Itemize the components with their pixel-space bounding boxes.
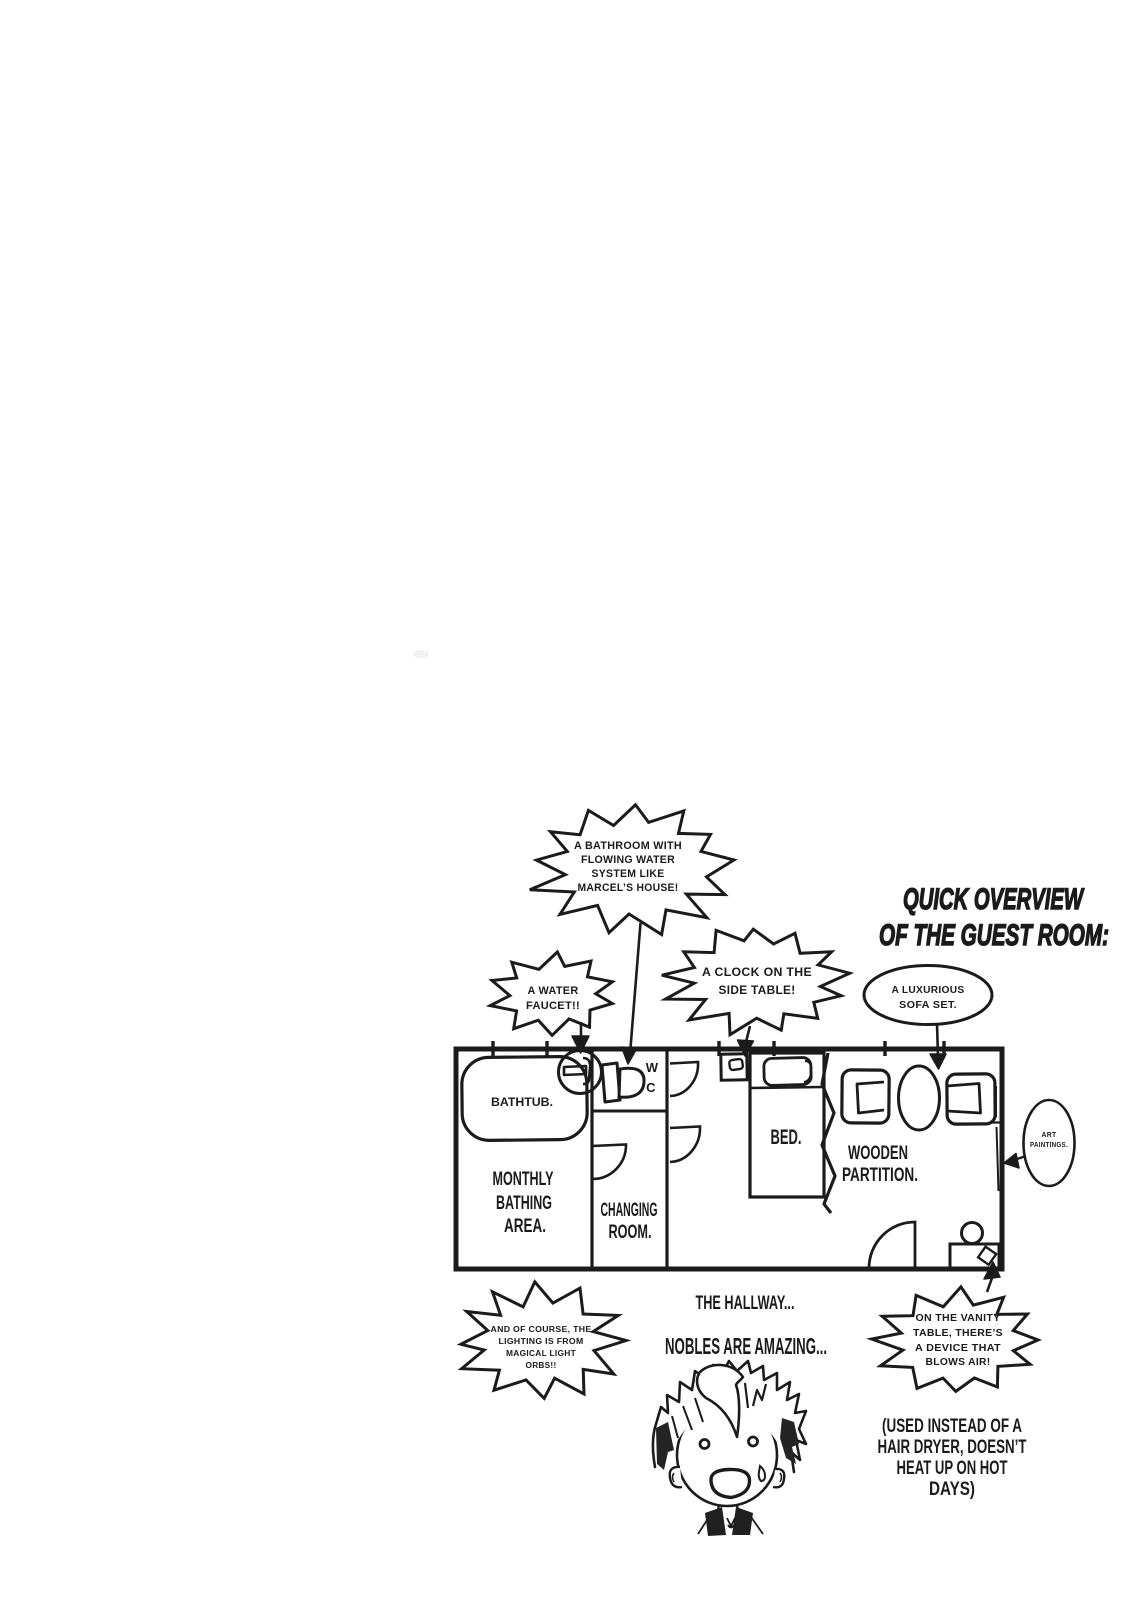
svg-text:HEAT UP ON HOT: HEAT UP ON HOT	[897, 1457, 1008, 1479]
svg-text:WOODEN: WOODEN	[848, 1142, 908, 1164]
svg-text:BATHING: BATHING	[496, 1192, 552, 1214]
svg-text:C: C	[646, 1080, 656, 1095]
svg-text:OF THE GUEST ROOM:: OF THE GUEST ROOM:	[879, 919, 1109, 952]
svg-text:FAUCET!!: FAUCET!!	[526, 1000, 580, 1012]
svg-text:ROOM.: ROOM.	[609, 1221, 652, 1243]
svg-text:NOBLES ARE AMAZING...: NOBLES ARE AMAZING...	[665, 1333, 827, 1359]
svg-text:A DEVICE THAT: A DEVICE THAT	[915, 1343, 1001, 1354]
svg-text:A LUXURIOUS: A LUXURIOUS	[892, 985, 965, 996]
svg-text:ART: ART	[1042, 1132, 1057, 1139]
svg-text:MAGICAL LIGHT: MAGICAL LIGHT	[506, 1348, 576, 1358]
svg-text:BLOWS AIR!: BLOWS AIR!	[926, 1357, 991, 1368]
svg-text:ON THE VANITY: ON THE VANITY	[916, 1313, 1001, 1324]
svg-text:DAYS): DAYS)	[929, 1478, 975, 1500]
svg-text:TABLE, THERE’S: TABLE, THERE’S	[913, 1328, 1003, 1339]
svg-text:A WATER: A WATER	[528, 985, 579, 997]
svg-text:ORBS!!: ORBS!!	[526, 1360, 557, 1370]
svg-text:A BATHROOM WITH: A BATHROOM WITH	[574, 840, 682, 852]
svg-text:FLOWING WATER: FLOWING WATER	[581, 854, 675, 866]
svg-text:(USED INSTEAD OF A: (USED INSTEAD OF A	[882, 1415, 1022, 1437]
svg-text:A CLOCK ON THE: A CLOCK ON THE	[702, 967, 812, 979]
svg-text:SYSTEM LIKE: SYSTEM LIKE	[592, 868, 665, 880]
svg-text:AREA.: AREA.	[504, 1215, 546, 1237]
svg-text:LIGHTING IS FROM: LIGHTING IS FROM	[499, 1336, 584, 1346]
svg-text:CHANGING: CHANGING	[601, 1199, 658, 1221]
svg-text:PAINTINGS.: PAINTINGS.	[1030, 1142, 1068, 1149]
svg-text:THE HALLWAY...: THE HALLWAY...	[696, 1292, 795, 1314]
svg-text:W: W	[646, 1060, 659, 1075]
svg-text:HAIR DRYER, DOESN’T: HAIR DRYER, DOESN’T	[878, 1436, 1027, 1458]
svg-text:SIDE TABLE!: SIDE TABLE!	[719, 985, 796, 997]
svg-text:QUICK OVERVIEW: QUICK OVERVIEW	[903, 883, 1085, 916]
svg-text:MONTHLY: MONTHLY	[493, 1168, 554, 1190]
svg-text:PARTITION.: PARTITION.	[842, 1164, 918, 1186]
svg-text:BED.: BED.	[771, 1126, 802, 1149]
svg-text:MARCEL’S HOUSE!: MARCEL’S HOUSE!	[578, 882, 679, 894]
svg-text:SOFA SET.: SOFA SET.	[899, 1000, 957, 1011]
svg-text:BATHTUB.: BATHTUB.	[491, 1095, 553, 1109]
svg-text:AND OF COURSE, THE: AND OF COURSE, THE	[491, 1324, 592, 1334]
